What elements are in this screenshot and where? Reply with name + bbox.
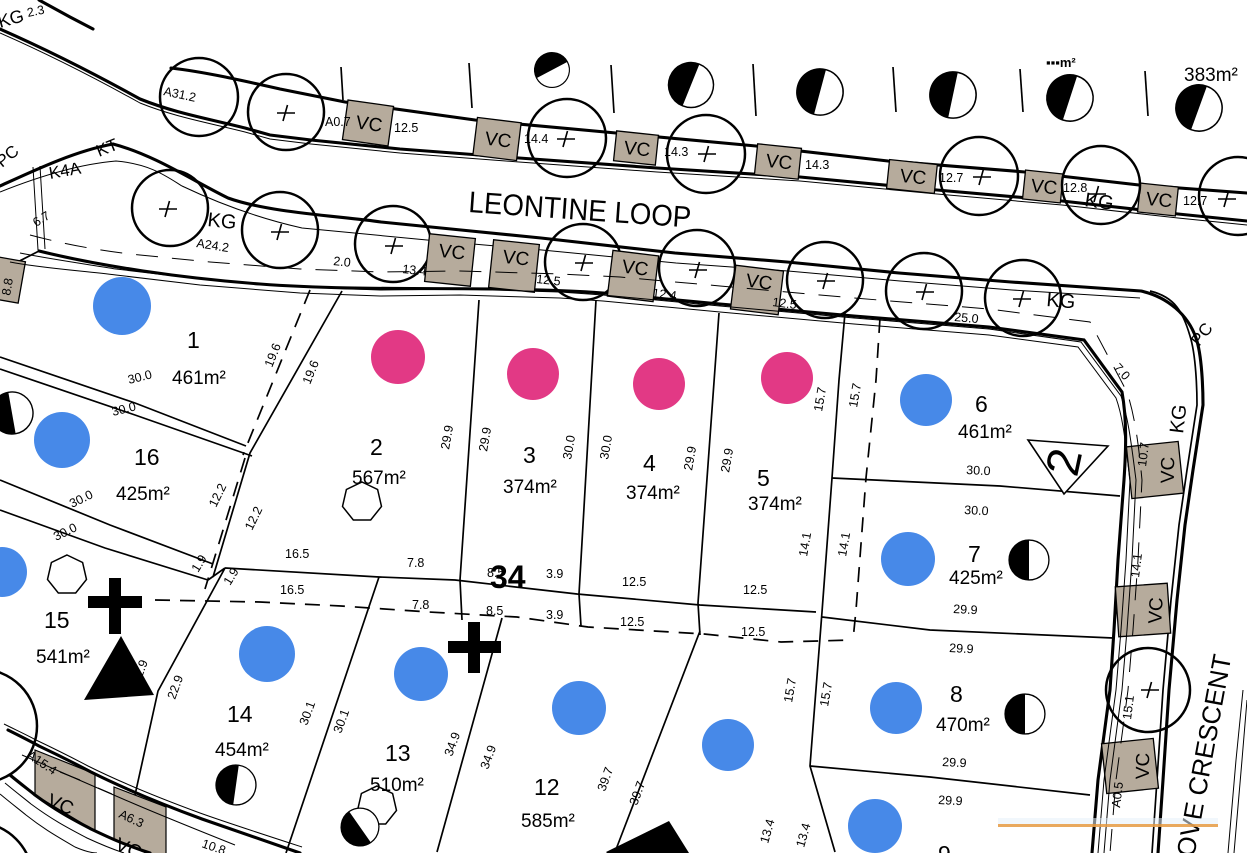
svg-text:8.5: 8.5: [487, 566, 504, 580]
svg-text:2.0: 2.0: [333, 254, 352, 270]
svg-text:12.5: 12.5: [743, 583, 767, 597]
svg-text:7.8: 7.8: [412, 598, 429, 612]
svg-text:10.7: 10.7: [1135, 441, 1152, 467]
svg-text:470m²: 470m²: [936, 715, 990, 736]
svg-text:374m²: 374m²: [503, 477, 557, 498]
svg-text:6: 6: [975, 391, 988, 417]
svg-text:14: 14: [227, 701, 253, 727]
svg-text:374m²: 374m²: [748, 494, 802, 515]
svg-text:9: 9: [938, 841, 951, 853]
svg-text:VC: VC: [438, 241, 466, 265]
svg-text:16.5: 16.5: [285, 547, 309, 561]
svg-text:8: 8: [950, 681, 963, 707]
svg-text:12.5: 12.5: [620, 615, 644, 629]
svg-text:30.0: 30.0: [966, 463, 991, 478]
svg-text:8.5: 8.5: [486, 604, 503, 618]
svg-text:12: 12: [534, 774, 560, 800]
svg-text:VC: VC: [765, 151, 793, 175]
svg-text:VC: VC: [745, 271, 774, 295]
svg-text:4: 4: [643, 450, 656, 476]
svg-text:29.9: 29.9: [938, 793, 963, 808]
svg-text:425m²: 425m²: [949, 568, 1003, 589]
svg-text:567m²: 567m²: [352, 468, 406, 489]
svg-text:14.4: 14.4: [524, 132, 548, 146]
svg-text:3.9: 3.9: [546, 608, 563, 622]
svg-text:461m²: 461m²: [958, 422, 1012, 443]
svg-text:425m²: 425m²: [116, 484, 170, 505]
svg-text:KG: KG: [1083, 189, 1115, 215]
svg-text:14.1: 14.1: [1128, 552, 1145, 578]
svg-text:7: 7: [968, 541, 981, 567]
svg-text:7.8: 7.8: [407, 556, 424, 570]
svg-text:5: 5: [757, 465, 770, 491]
svg-text:VC: VC: [623, 138, 651, 162]
svg-text:25.0: 25.0: [954, 310, 980, 326]
svg-text:KG: KG: [206, 209, 237, 234]
svg-text:13: 13: [385, 740, 411, 766]
svg-text:▪▪▪m²: ▪▪▪m²: [1046, 55, 1076, 70]
svg-text:454m²: 454m²: [215, 740, 269, 761]
svg-text:16: 16: [134, 444, 160, 470]
svg-text:383m²: 383m²: [1184, 65, 1238, 86]
svg-text:VC: VC: [1030, 176, 1058, 200]
svg-text:14.3: 14.3: [664, 145, 688, 159]
svg-text:VC: VC: [1158, 457, 1179, 484]
svg-text:15.1: 15.1: [1120, 694, 1137, 720]
svg-text:VC: VC: [354, 112, 383, 136]
svg-text:12.8: 12.8: [1063, 181, 1087, 195]
svg-text:12.7: 12.7: [939, 171, 963, 185]
svg-text:3.9: 3.9: [546, 567, 563, 581]
svg-text:29.9: 29.9: [942, 755, 967, 770]
svg-text:VC: VC: [1145, 597, 1167, 624]
svg-text:510m²: 510m²: [370, 775, 424, 796]
svg-text:A0.7: A0.7: [325, 115, 351, 129]
svg-text:VC: VC: [502, 247, 530, 271]
svg-text:541m²: 541m²: [36, 647, 90, 668]
svg-text:VC: VC: [484, 129, 513, 153]
svg-text:585m²: 585m²: [521, 811, 575, 832]
svg-text:30.0: 30.0: [964, 503, 989, 518]
svg-text:12.5: 12.5: [741, 625, 765, 639]
svg-text:VC: VC: [1133, 753, 1154, 780]
svg-text:16.5: 16.5: [280, 583, 304, 597]
svg-text:29.9: 29.9: [953, 602, 978, 617]
svg-text:461m²: 461m²: [172, 368, 226, 389]
svg-text:2: 2: [370, 434, 383, 460]
svg-text:14.3: 14.3: [805, 158, 829, 172]
svg-text:1: 1: [187, 327, 200, 353]
svg-text:KG: KG: [1166, 403, 1191, 434]
svg-text:374m²: 374m²: [626, 483, 680, 504]
svg-text:12.5: 12.5: [394, 121, 418, 135]
svg-text:15: 15: [44, 607, 70, 633]
svg-text:29.9: 29.9: [949, 641, 974, 656]
svg-text:VC: VC: [899, 166, 927, 190]
svg-text:VC: VC: [1145, 189, 1173, 213]
svg-text:13.4: 13.4: [402, 262, 428, 278]
svg-text:12.7: 12.7: [1183, 194, 1207, 208]
svg-text:12.5: 12.5: [622, 575, 646, 589]
svg-text:3: 3: [523, 442, 536, 468]
svg-text:KG: KG: [1046, 289, 1077, 313]
